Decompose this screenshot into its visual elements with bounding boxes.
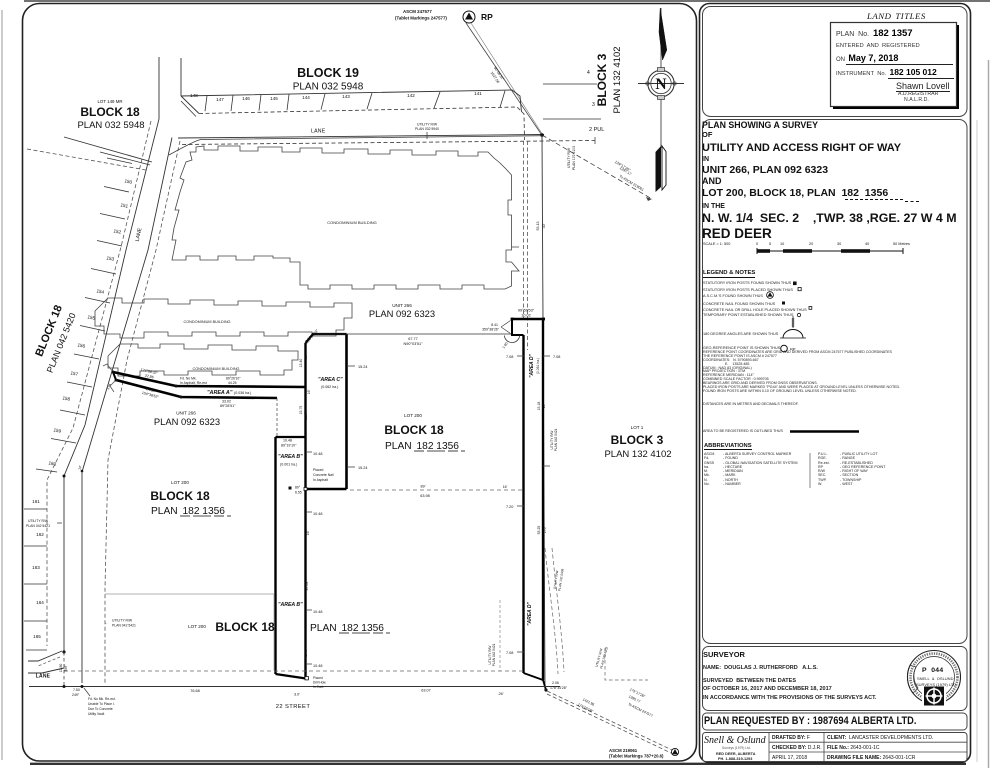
svg-text:7.50: 7.50 <box>73 688 80 692</box>
svg-text:PLAN 092 6323: PLAN 092 6323 <box>154 416 220 427</box>
svg-text:89°28'51": 89°28'51" <box>220 404 236 408</box>
svg-text:2.06: 2.06 <box>552 681 559 685</box>
svg-text:"AREA B": "AREA B" <box>278 454 303 460</box>
svg-text:"AREA A": "AREA A" <box>207 390 233 396</box>
svg-text:10.48: 10.48 <box>313 512 323 516</box>
svg-text:16': 16' <box>307 389 311 394</box>
svg-text:PLAN 042 5421: PLAN 042 5421 <box>112 624 136 628</box>
svg-text:UTILITY R/W: UTILITY R/W <box>112 619 133 623</box>
svg-text:LOT 200: LOT 200 <box>171 480 189 485</box>
svg-text:PLAN 032 5940: PLAN 032 5940 <box>415 127 439 131</box>
svg-text:"AREA C": "AREA C" <box>318 377 343 383</box>
svg-text:"AREA D": "AREA D" <box>529 354 535 378</box>
svg-text:15.24: 15.24 <box>358 466 368 470</box>
svg-text:LOT 200: LOT 200 <box>188 624 206 629</box>
svg-text:7.08: 7.08 <box>506 355 513 359</box>
svg-text:PLAN 092 6323: PLAN 092 6323 <box>369 308 435 319</box>
svg-text:33.02: 33.02 <box>222 400 231 404</box>
svg-text:(0.061 ha.): (0.061 ha.) <box>536 358 540 374</box>
svg-text:In Asphalt: In Asphalt <box>313 478 328 482</box>
svg-text:Drill Hole: Drill Hole <box>313 681 326 685</box>
svg-text:44.25: 44.25 <box>228 381 237 385</box>
svg-text:RP: RP <box>481 12 493 22</box>
svg-text:PLAN 042 5421: PLAN 042 5421 <box>492 644 496 667</box>
svg-text:1.70': 1.70' <box>304 649 308 657</box>
svg-text:10.02: 10.02 <box>521 314 531 318</box>
svg-text:22 STREET: 22 STREET <box>276 704 311 710</box>
svg-text:76.68: 76.68 <box>190 689 200 693</box>
svg-text:PLAN 032 5948: PLAN 032 5948 <box>293 82 364 93</box>
svg-text:PLAN 182 1356: PLAN 182 1356 <box>310 623 384 634</box>
svg-text:Unable To Place I.: Unable To Place I. <box>88 702 115 706</box>
svg-text:4: 4 <box>587 70 590 76</box>
svg-text:15.75: 15.75 <box>299 406 303 415</box>
svg-text:10.48: 10.48 <box>283 439 292 443</box>
svg-text:(Tablet Markings 787+20.6): (Tablet Markings 787+20.6) <box>609 754 664 759</box>
svg-text:162: 162 <box>36 532 44 537</box>
svg-text:163: 163 <box>32 565 40 570</box>
svg-text:Utility Vault: Utility Vault <box>88 712 104 716</box>
svg-text:144: 144 <box>302 95 310 100</box>
svg-text:2 PUL: 2 PUL <box>589 127 604 133</box>
svg-text:63.07: 63.07 <box>421 689 431 693</box>
svg-text:7.20: 7.20 <box>506 505 513 509</box>
svg-text:BLOCK 3: BLOCK 3 <box>611 433 664 447</box>
svg-text:ASCM 219061: ASCM 219061 <box>609 748 638 753</box>
svg-text:Placed: Placed <box>313 676 323 680</box>
svg-text:99°59'53": 99°59'53" <box>518 309 535 313</box>
svg-text:142: 142 <box>407 93 415 98</box>
svg-text:359°: 359° <box>64 664 68 672</box>
svg-text:53.13: 53.13 <box>536 222 540 231</box>
svg-text:UTILITY R/W: UTILITY R/W <box>28 519 49 523</box>
svg-text:165: 165 <box>33 634 41 639</box>
svg-text:13.40: 13.40 <box>299 359 303 368</box>
svg-text:BLOCK 18: BLOCK 18 <box>80 105 140 119</box>
svg-text:15.18: 15.18 <box>537 402 541 411</box>
svg-text:8.41: 8.41 <box>491 323 498 327</box>
svg-text:LOT 1: LOT 1 <box>631 425 644 430</box>
svg-text:141: 141 <box>474 91 482 96</box>
svg-text:"AREA D": "AREA D" <box>527 602 533 626</box>
svg-text:145: 145 <box>270 96 278 101</box>
svg-text:PLAN 132 4102: PLAN 132 4102 <box>612 46 623 113</box>
svg-text:PLAN 172 6103: PLAN 172 6103 <box>572 146 576 170</box>
svg-text:87.03: 87.03 <box>305 582 309 591</box>
svg-text:178°34'28": 178°34'28" <box>550 686 568 690</box>
svg-text:PLAN 042 5421: PLAN 042 5421 <box>554 429 558 452</box>
svg-text:89': 89' <box>421 485 426 489</box>
svg-text:(0.036 ha.): (0.036 ha.) <box>234 391 251 395</box>
svg-text:16': 16' <box>306 530 310 535</box>
svg-text:7.08: 7.08 <box>553 355 560 359</box>
svg-text:CONDOMINIUM BUILDING: CONDOMINIUM BUILDING <box>327 220 377 225</box>
svg-text:3.0': 3.0' <box>294 693 300 697</box>
svg-text:BLOCK 18: BLOCK 18 <box>215 620 275 634</box>
svg-text:63.98: 63.98 <box>420 494 430 498</box>
svg-text:143: 143 <box>342 94 350 99</box>
svg-text:LANE: LANE <box>36 674 51 680</box>
svg-text:Placed: Placed <box>313 468 323 472</box>
svg-text:ASCM 247577: ASCM 247577 <box>403 9 432 14</box>
svg-text:BLOCK 3: BLOCK 3 <box>595 53 609 106</box>
svg-text:PLAN 042 5421: PLAN 042 5421 <box>26 524 50 528</box>
svg-text:16': 16' <box>503 485 508 489</box>
svg-text:PLAN 182 1356: PLAN 182 1356 <box>385 441 459 452</box>
svg-text:←: ← <box>104 620 108 625</box>
svg-text:CONDOMINIUM BUILDING: CONDOMINIUM BUILDING <box>183 320 230 324</box>
svg-text:BLOCK 18: BLOCK 18 <box>150 489 210 503</box>
svg-text:147: 147 <box>216 97 224 102</box>
svg-text:95': 95' <box>304 354 308 359</box>
svg-text:UTILITY R/W: UTILITY R/W <box>567 147 571 168</box>
svg-text:89°19'10": 89°19'10" <box>281 444 297 448</box>
svg-text:Fd. No Mk. Re-est.: Fd. No Mk. Re-est. <box>88 697 116 701</box>
svg-text:10.48: 10.48 <box>313 610 323 614</box>
svg-text:89°: 89° <box>295 486 301 490</box>
svg-text:Due To Concrete: Due To Concrete <box>88 707 113 711</box>
svg-text:(0.001 ha.): (0.001 ha.) <box>280 463 297 467</box>
svg-text:53.25: 53.25 <box>537 526 541 535</box>
svg-text:6.55: 6.55 <box>295 491 302 495</box>
svg-text:PLAN 182 1356: PLAN 182 1356 <box>151 506 225 517</box>
svg-text:PLAN 032 5948: PLAN 032 5948 <box>77 120 144 131</box>
svg-text:67.77: 67.77 <box>408 337 418 341</box>
svg-text:210°: 210° <box>304 412 308 420</box>
svg-text:In Asphalt, Re-est: In Asphalt, Re-est <box>180 381 207 385</box>
svg-text:12.80: 12.80 <box>59 664 63 673</box>
svg-text:15.24: 15.24 <box>358 365 368 369</box>
svg-text:PLAN 132 4102: PLAN 132 4102 <box>604 449 671 460</box>
svg-text:LOT 149 MR: LOT 149 MR <box>97 99 122 104</box>
svg-text:(Tablet Markings 247577): (Tablet Markings 247577) <box>395 16 447 21</box>
svg-text:LOT 200: LOT 200 <box>404 413 422 418</box>
svg-text:N90°03'51": N90°03'51" <box>403 342 423 346</box>
svg-text:UTILITY R/W: UTILITY R/W <box>417 123 438 127</box>
svg-text:359°38'26": 359°38'26" <box>482 328 500 332</box>
svg-text:10.48: 10.48 <box>313 452 323 456</box>
svg-text:CONDOMINIUM BUILDING: CONDOMINIUM BUILDING <box>192 367 239 371</box>
svg-text:25': 25' <box>542 403 546 408</box>
svg-text:161: 161 <box>32 499 40 504</box>
svg-text:30': 30' <box>542 223 546 228</box>
svg-text:89°26'10": 89°26'10" <box>226 377 241 381</box>
svg-text:164: 164 <box>36 600 44 605</box>
svg-text:UNIT 266: UNIT 266 <box>176 411 196 416</box>
svg-text:BLOCK 19: BLOCK 19 <box>297 66 359 80</box>
svg-text:In Curb: In Curb <box>313 685 324 689</box>
svg-text:Concrete Nail: Concrete Nail <box>313 473 334 477</box>
svg-text:BLOCK 18: BLOCK 18 <box>384 423 444 437</box>
svg-text:146: 146 <box>242 96 250 101</box>
svg-text:LANE: LANE <box>311 129 326 135</box>
svg-text:N: N <box>655 76 666 93</box>
svg-text:249°: 249° <box>72 693 80 697</box>
svg-text:(0.062 ha.): (0.062 ha.) <box>321 385 338 389</box>
svg-text:148: 148 <box>190 93 198 98</box>
svg-text:170': 170' <box>543 526 547 533</box>
svg-text:7.08: 7.08 <box>506 651 513 655</box>
svg-text:10.48: 10.48 <box>313 664 323 668</box>
svg-text:"AREA B": "AREA B" <box>278 602 303 608</box>
svg-text:Fd. No Mk.: Fd. No Mk. <box>180 377 197 381</box>
svg-text:26': 26' <box>499 692 504 696</box>
svg-text:3: 3 <box>592 102 595 108</box>
